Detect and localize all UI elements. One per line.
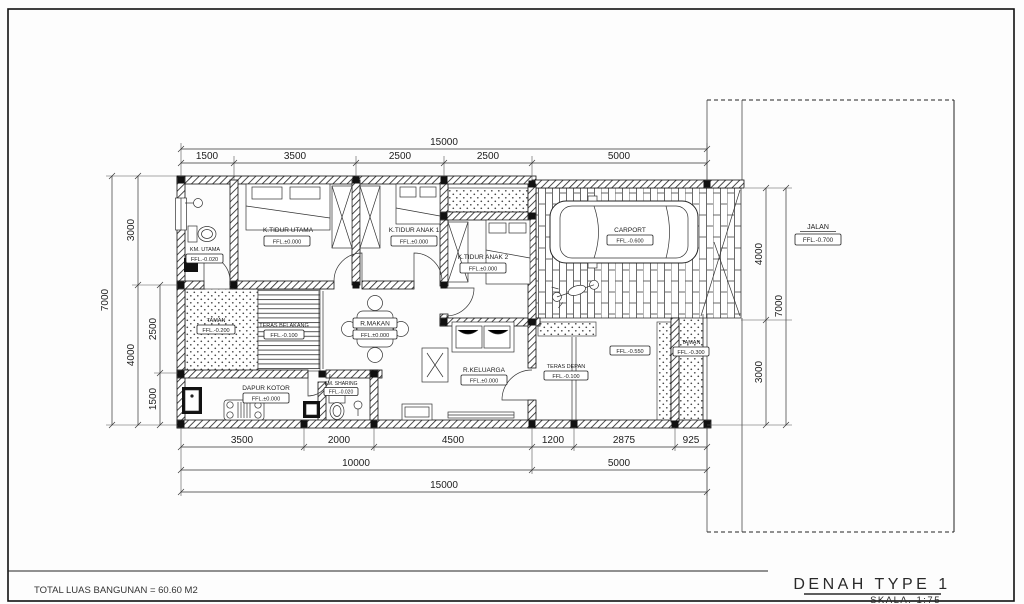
- dim-top-3500: 3500: [284, 151, 307, 162]
- footer-note: TOTAL LUAS BANGUNAN = 60.60 M2: [34, 585, 198, 596]
- svg-text:TERAS BELAKANG: TERAS BELAKANG: [259, 323, 309, 329]
- svg-text:FFL.-0.300: FFL.-0.300: [677, 350, 704, 356]
- door-arc-ktidur-anak2: [446, 288, 474, 316]
- bed-anak1-icon: [396, 184, 440, 224]
- room-label-teras-belakang: TERAS BELAKANG FFL.-0.100: [259, 323, 309, 339]
- door-arc-ktidur-anak1: [414, 253, 442, 281]
- svg-text:FFL.-0.100: FFL.-0.100: [270, 333, 297, 339]
- planter-strip: [448, 188, 528, 212]
- dim-top-2500a: 2500: [389, 151, 412, 162]
- svg-text:FFL.±0.000: FFL.±0.000: [469, 266, 498, 272]
- level-label-halaman: FFL.-0.550: [610, 346, 650, 355]
- dim-b1-1200: 1200: [542, 435, 565, 446]
- svg-text:R.KELUARGA: R.KELUARGA: [463, 367, 506, 374]
- room-label-jalan: JALAN FFL.-0.700: [795, 224, 841, 245]
- dim-left-1500: 1500: [148, 387, 159, 410]
- taman-depan-strip-left: [657, 322, 671, 421]
- dim-left-3000: 3000: [126, 218, 137, 241]
- svg-text:K.TIDUR UTAMA: K.TIDUR UTAMA: [263, 227, 314, 234]
- room-label-teras-depan: TERAS DEPAN FFL.-0.100: [544, 364, 588, 380]
- drawing-sheet: 15000 1500 3500 2500 2500 5000 3500 2000…: [0, 0, 1024, 604]
- tv-cabinet-icon: [402, 404, 514, 420]
- svg-text:CARPORT: CARPORT: [614, 227, 646, 234]
- washbasin-sharing-icon: [303, 401, 320, 418]
- drawing-scale: SKALA. 1:75: [870, 595, 941, 604]
- toilet-sharing-icon: [329, 395, 345, 420]
- svg-text:K.TIDUR ANAK 2: K.TIDUR ANAK 2: [458, 254, 509, 261]
- room-label-rkeluarga: R.KELUARGA FFL.±0.000: [461, 367, 507, 385]
- room-label-km-utama: KM. UTAMA FFL.-0.020: [186, 247, 223, 263]
- dim-left-2500: 2500: [148, 317, 159, 340]
- sheet-frame: [8, 9, 1014, 601]
- svg-text:KM. SHARING: KM. SHARING: [324, 381, 357, 387]
- svg-text:JALAN: JALAN: [807, 224, 829, 231]
- dim-bottom-total: 15000: [430, 480, 458, 491]
- drawing-title: DENAH TYPE 1: [793, 576, 950, 593]
- room-label-ktidur-utama: K.TIDUR UTAMA FFL.±0.000: [263, 227, 314, 246]
- dim-top-total: 15000: [430, 137, 458, 148]
- dim-right-4000: 4000: [754, 242, 765, 265]
- dim-right-3000: 3000: [754, 360, 765, 383]
- bed-anak2-icon: [486, 220, 530, 284]
- dining-table-icon: [342, 296, 409, 363]
- svg-text:R.MAKAN: R.MAKAN: [360, 321, 390, 328]
- svg-text:TAMAN: TAMAN: [682, 340, 701, 346]
- svg-text:K.TIDUR ANAK 1: K.TIDUR ANAK 1: [389, 227, 440, 234]
- svg-text:FFL.-0.600: FFL.-0.600: [616, 238, 643, 244]
- room-label-ktidur-anak2: K.TIDUR ANAK 2 FFL.±0.000: [458, 254, 509, 273]
- dim-top-2500b: 2500: [477, 151, 500, 162]
- dim-top-1500: 1500: [196, 151, 219, 162]
- dim-b1-2875: 2875: [613, 435, 636, 446]
- taman-depan-strip-right: [679, 314, 703, 422]
- room-label-dapur-kotor: DAPUR KOTOR FFL.±0.000: [242, 385, 290, 403]
- dim-b1-925: 925: [683, 435, 700, 446]
- svg-text:FFL.±0.000: FFL.±0.000: [252, 396, 281, 402]
- dim-b1-4500: 4500: [442, 435, 465, 446]
- room-label-ktidur-anak1: K.TIDUR ANAK 1 FFL.±0.000: [389, 227, 440, 246]
- dim-right-7000: 7000: [774, 294, 785, 317]
- shower-icon: [185, 199, 203, 208]
- dim-b2-10000: 10000: [342, 458, 370, 469]
- svg-text:FFL.-0.550: FFL.-0.550: [616, 349, 643, 355]
- title-block: TOTAL LUAS BANGUNAN = 60.60 M2 DENAH TYP…: [34, 576, 951, 604]
- toilet-utama-icon: [188, 226, 216, 242]
- svg-text:FFL.-0.020: FFL.-0.020: [329, 390, 354, 396]
- floor-plan-drawing: 15000 1500 3500 2500 2500 5000 3500 2000…: [0, 0, 1024, 604]
- svg-text:FFL.-0.700: FFL.-0.700: [803, 237, 834, 244]
- dim-left-7000: 7000: [100, 288, 111, 311]
- svg-text:DAPUR KOTOR: DAPUR KOTOR: [242, 385, 290, 392]
- svg-text:FFL.±0.000: FFL.±0.000: [273, 239, 302, 245]
- svg-text:KM. UTAMA: KM. UTAMA: [190, 247, 220, 253]
- dim-b1-2000: 2000: [328, 435, 351, 446]
- teras-depan-planter: [538, 322, 596, 336]
- svg-text:FFL.±0.000: FFL.±0.000: [470, 378, 499, 384]
- dim-b1-3500: 3500: [231, 435, 254, 446]
- room-label-km-sharing: KM. SHARING FFL.-0.020: [324, 381, 358, 396]
- kitchen-sink-icon: [182, 387, 202, 414]
- dim-left-4000: 4000: [126, 343, 137, 366]
- sofa-icon: [452, 322, 514, 352]
- road-region: [707, 100, 954, 532]
- svg-text:TAMAN: TAMAN: [207, 318, 226, 324]
- svg-text:FFL.±0.000: FFL.±0.000: [400, 239, 429, 245]
- svg-text:FFL.-0.200: FFL.-0.200: [202, 328, 229, 334]
- bed-utama-icon: [246, 184, 330, 230]
- floor-drain-icon: [354, 401, 362, 416]
- svg-text:FFL.-0.020: FFL.-0.020: [191, 257, 218, 263]
- dim-b2-5000: 5000: [608, 458, 631, 469]
- armchair-icon: [422, 348, 448, 382]
- dim-top-5000: 5000: [608, 151, 631, 162]
- svg-text:FFL.±0.000: FFL.±0.000: [361, 333, 390, 339]
- window-icon: [176, 198, 187, 230]
- svg-text:FFL.-0.100: FFL.-0.100: [552, 374, 579, 380]
- svg-text:TERAS DEPAN: TERAS DEPAN: [547, 364, 585, 370]
